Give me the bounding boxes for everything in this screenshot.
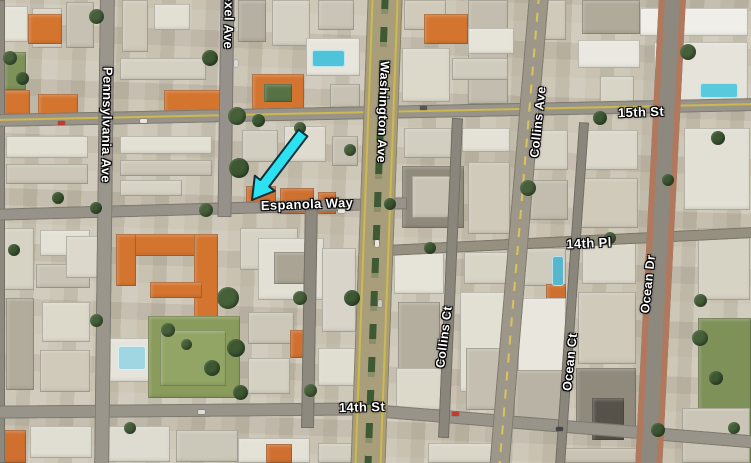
street-label-washington-ave: Washington Ave	[374, 61, 392, 164]
street-label-collins-ave: Collins Ave	[527, 86, 548, 159]
street-label-ocean-dr: Ocean Dr	[638, 254, 658, 314]
satellite-map[interactable]: Drexel AvePennsylvania AveWashington Ave…	[0, 0, 751, 463]
street-label-drexel-ave: Drexel Ave	[221, 0, 237, 49]
street-label-fourteenth-pl: 14th Pl	[566, 235, 612, 252]
street-label-fifteenth-st: 15th St	[618, 104, 665, 121]
street-label-pennsylvania-ave: Pennsylvania Ave	[98, 67, 115, 183]
street-label-collins-ct: Collins Ct	[433, 305, 454, 369]
street-label-ocean-ct: Ocean Ct	[560, 332, 580, 391]
street-label-espanola-way: Espanola Way	[261, 195, 354, 213]
street-label-fourteenth-st: 14th St	[339, 399, 386, 415]
street-labels-layer: Drexel AvePennsylvania AveWashington Ave…	[0, 0, 751, 463]
